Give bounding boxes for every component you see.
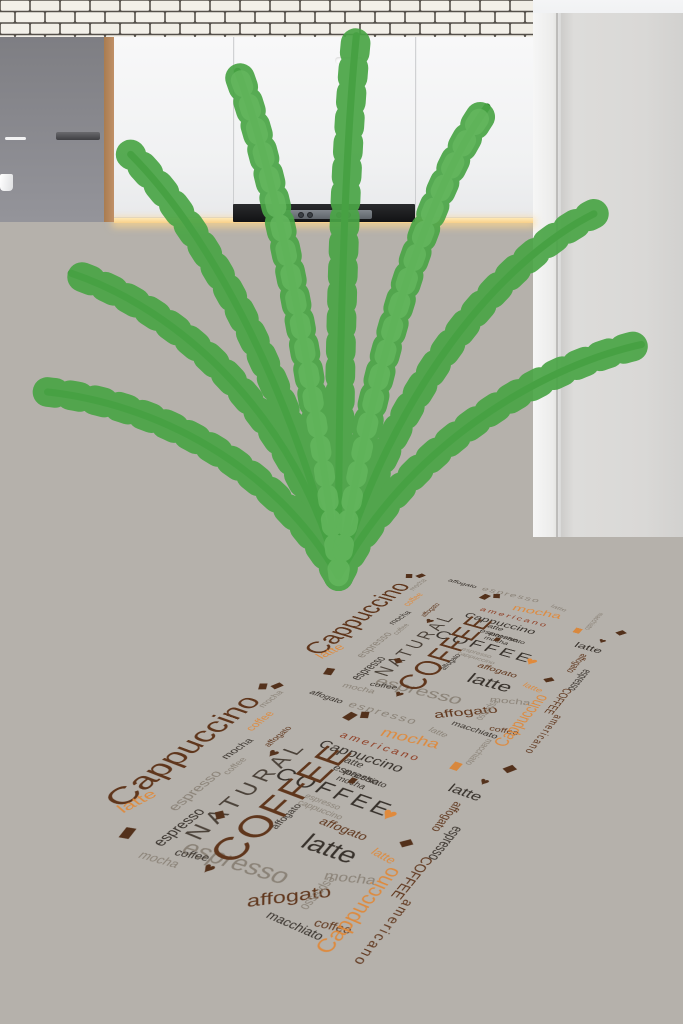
decor-vase-small bbox=[100, 356, 122, 382]
plate-stack bbox=[82, 80, 140, 94]
coffee-bean-icon bbox=[258, 684, 267, 690]
rug-word: latte bbox=[520, 681, 545, 694]
coffee-bean-icon bbox=[573, 628, 583, 634]
coffee-bean-icon bbox=[323, 668, 335, 675]
floor-crack bbox=[263, 939, 283, 1024]
heart-icon: ♥ bbox=[596, 637, 609, 646]
coffee-bean-icon bbox=[543, 677, 554, 682]
coffee-bean-icon bbox=[615, 630, 627, 635]
coffee-bean-icon bbox=[479, 594, 491, 600]
coffee-bean-icon bbox=[119, 827, 137, 839]
decor-vase-large bbox=[64, 340, 98, 383]
coffee-bean-icon bbox=[406, 574, 413, 578]
bowl-stack bbox=[16, 52, 78, 93]
heart-icon: ♥ bbox=[476, 775, 493, 788]
coffee-bean-icon bbox=[270, 683, 284, 690]
white-bottle bbox=[528, 312, 539, 342]
coffee-bean-icon bbox=[502, 765, 517, 773]
coffee-bean-icon bbox=[399, 839, 413, 847]
coffee-bean-icon bbox=[449, 762, 462, 771]
rug-word: latte bbox=[368, 846, 400, 867]
plate-stack bbox=[90, 180, 144, 193]
kitchen-photo: espressoaffogatolattemacchiatomochaameri… bbox=[0, 0, 683, 1024]
floor-crack bbox=[271, 1005, 307, 1024]
rug-word: mocha bbox=[218, 737, 256, 761]
canister bbox=[34, 302, 60, 345]
coffee-bean-icon bbox=[493, 594, 500, 599]
rug-word: macchiato bbox=[462, 738, 495, 767]
white-bottle bbox=[514, 300, 526, 342]
rug-word: mocha bbox=[386, 610, 414, 626]
rug-word: macchiato bbox=[582, 612, 605, 631]
cup-stack bbox=[38, 152, 82, 194]
rug-word: affogato bbox=[307, 689, 346, 705]
rug-word: mocha bbox=[256, 690, 286, 709]
canister bbox=[8, 308, 32, 345]
coffee-bean-icon bbox=[360, 712, 370, 719]
coffee-bean-icon bbox=[342, 711, 357, 720]
